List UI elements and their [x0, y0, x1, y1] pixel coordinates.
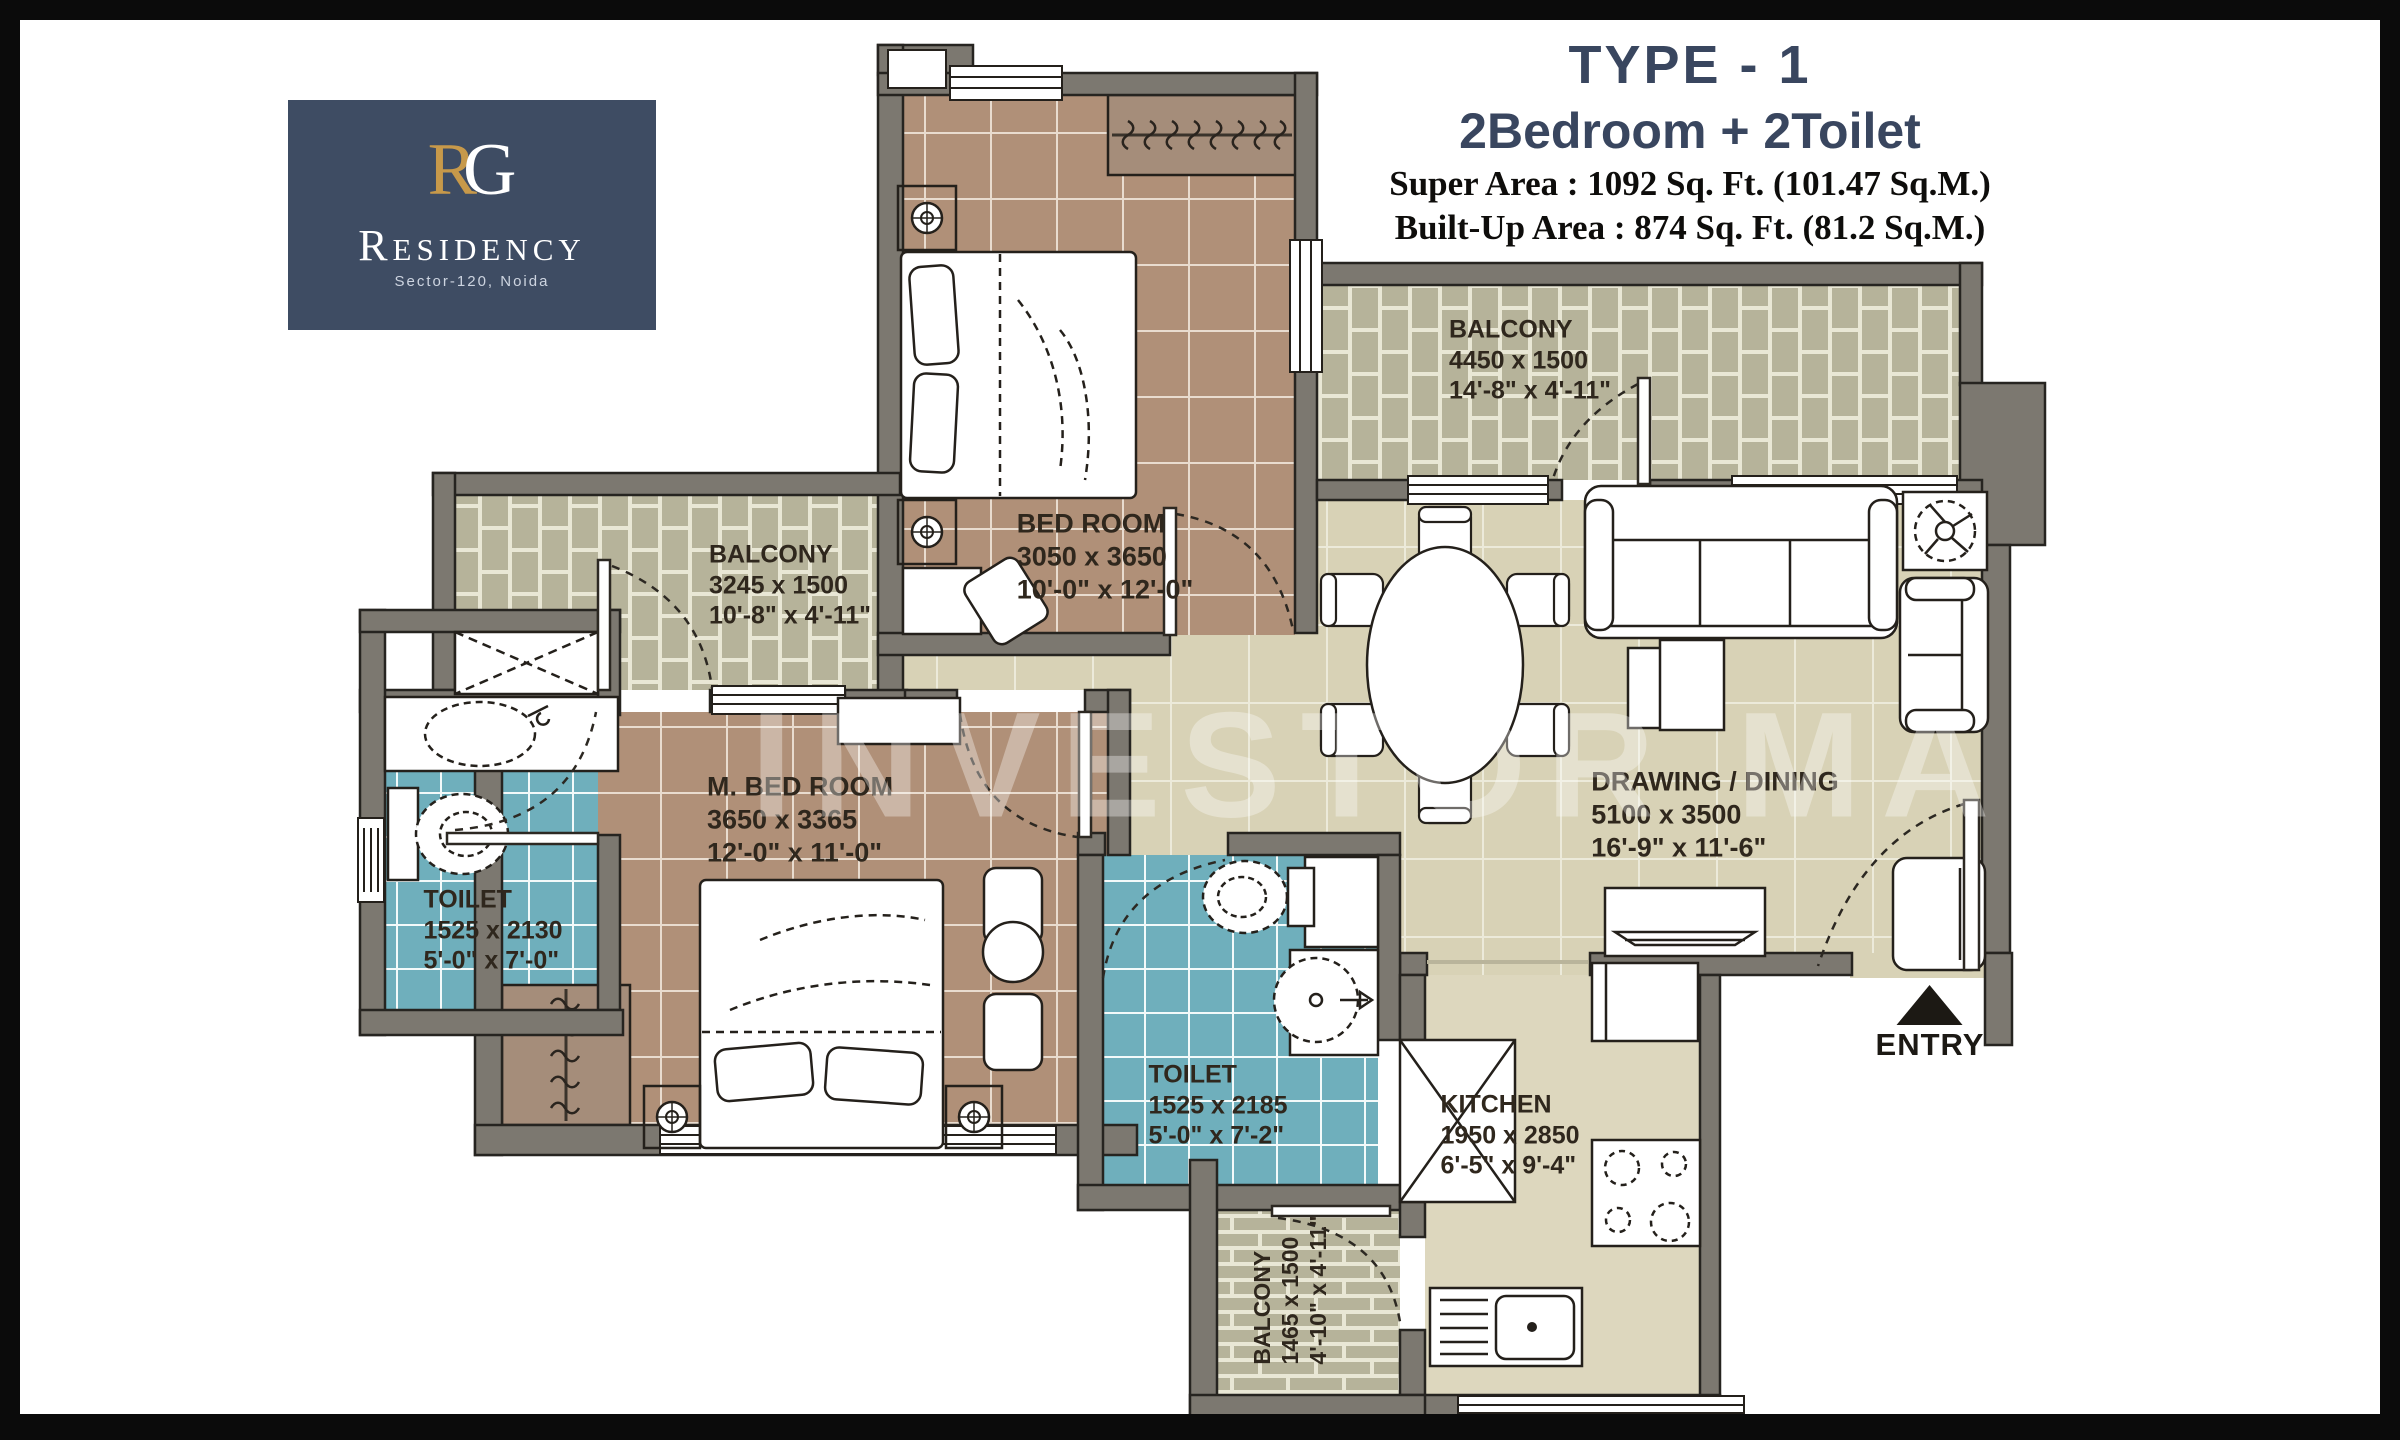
room-dim-ft: 10'-0" x 12'-0" [1017, 573, 1194, 606]
bedroom-bed [901, 252, 1136, 498]
pillow [909, 373, 958, 473]
master-nightstand-speaker [657, 1102, 687, 1132]
bedroom-doorway-floor [1170, 633, 1295, 658]
frame-left [0, 0, 20, 1440]
frame-right [2380, 0, 2400, 1440]
room-dim-ft: 4'-10" x 4'-11" [1304, 1215, 1332, 1364]
room-dim-mm: 5100 x 3500 [1591, 799, 1839, 832]
entry-label: ENTRY [1876, 1027, 1985, 1063]
toilet-louver [358, 818, 384, 902]
kitchen-sink [1430, 1288, 1582, 1366]
shaft-left [455, 632, 598, 694]
dining-table [1367, 547, 1523, 783]
tv-unit [1605, 888, 1765, 956]
master-nightstand-speaker [959, 1102, 989, 1132]
master-bedroom-label: M. BED ROOM 3650 x 3365 12'-0" x 11'-0" [707, 771, 893, 870]
coffee-table [1628, 640, 1724, 730]
foyer-floor-strip [900, 655, 1100, 690]
floor-plan-drawing [0, 0, 2400, 1440]
room-dim-mm: 1465 x 1500 [1276, 1215, 1304, 1364]
bedroom-nightstand-speaker [912, 517, 942, 547]
room-dim-mm: 3650 x 3365 [707, 804, 893, 837]
kitchen-label: KITCHEN 1950 x 2850 6'-5" x 9'-4" [1440, 1089, 1579, 1181]
room-dim-mm: 3245 x 1500 [709, 570, 871, 601]
balcony-left-window [712, 686, 845, 714]
room-name: BALCONY [709, 539, 871, 570]
room-name: BALCONY [1248, 1215, 1276, 1364]
room-dim-mm: 4450 x 1500 [1449, 345, 1611, 376]
frame-top [0, 0, 2400, 20]
floor-plan-page: RG Residency Sector-120, Noida TYPE - 1 … [0, 0, 2400, 1440]
bedroom-nightstand-speaker [912, 203, 942, 233]
pillow [714, 1042, 814, 1102]
wash-basin [1274, 950, 1378, 1055]
frame-bottom [0, 1414, 2400, 1440]
master-bed [700, 880, 943, 1148]
master-chair-2 [984, 994, 1042, 1070]
room-dim-ft: 14'-8" x 4'-11" [1449, 375, 1611, 406]
room-dim-mm: 1950 x 2850 [1440, 1120, 1579, 1151]
bedroom-wardrobe [1108, 95, 1296, 175]
room-name: BALCONY [1449, 314, 1611, 345]
room-dim-mm: 3050 x 3650 [1017, 541, 1194, 574]
room-dim-mm: 1525 x 2130 [423, 915, 562, 946]
room-dim-ft: 10'-8" x 4'-11" [709, 600, 871, 631]
duct-box [888, 50, 946, 88]
pillow [824, 1047, 923, 1106]
sofa-two-seat [1900, 578, 1988, 732]
bedroom-top-window [950, 66, 1062, 100]
room-dim-ft: 6'-5" x 9'-4" [1440, 1150, 1579, 1181]
hob [1592, 1140, 1700, 1246]
wc-niche [1305, 857, 1378, 947]
fridge [1592, 963, 1698, 1041]
toilet-master-label: TOILET 1525 x 2130 5'-0" x 7'-0" [423, 884, 562, 976]
room-dim-ft: 12'-0" x 11'-0" [707, 836, 893, 869]
balcony-bottom-label: BALCONY 1465 x 1500 4'-10" x 4'-11" [1248, 1215, 1332, 1364]
entry-marker: ENTRY [1876, 985, 1985, 1063]
wc [1203, 861, 1314, 933]
wash-basin [425, 702, 535, 766]
room-name: BED ROOM [1017, 508, 1194, 541]
room-name: TOILET [423, 884, 562, 915]
master-side-table [983, 922, 1043, 982]
sofa-three-seat [1585, 486, 1897, 638]
entry-arrow-icon [1897, 985, 1963, 1025]
pillow [909, 265, 960, 366]
room-name: DRAWING / DINING [1591, 766, 1839, 799]
balcony-top-label: BALCONY 4450 x 1500 14'-8" x 4'-11" [1449, 314, 1611, 406]
corner-fan [1903, 492, 1987, 570]
drawing-dining-label: DRAWING / DINING 5100 x 3500 16'-9" x 11… [1591, 766, 1839, 865]
master-dresser [838, 698, 960, 744]
room-name: M. BED ROOM [707, 771, 893, 804]
bedroom-right-window [1290, 240, 1322, 372]
room-name: KITCHEN [1440, 1089, 1579, 1120]
room-dim-ft: 16'-9" x 11'-6" [1591, 831, 1839, 864]
living-window-left [1408, 476, 1548, 504]
room-name: TOILET [1148, 1059, 1287, 1090]
toilet-common-label: TOILET 1525 x 2185 5'-0" x 7'-2" [1148, 1059, 1287, 1151]
room-dim-mm: 1525 x 2185 [1148, 1090, 1287, 1121]
room-dim-ft: 5'-0" x 7'-0" [423, 945, 562, 976]
balcony-left-label: BALCONY 3245 x 1500 10'-8" x 4'-11" [709, 539, 871, 631]
bedroom-label: BED ROOM 3050 x 3650 10'-0" x 12'-0" [1017, 508, 1194, 607]
room-dim-ft: 5'-0" x 7'-2" [1148, 1120, 1287, 1151]
